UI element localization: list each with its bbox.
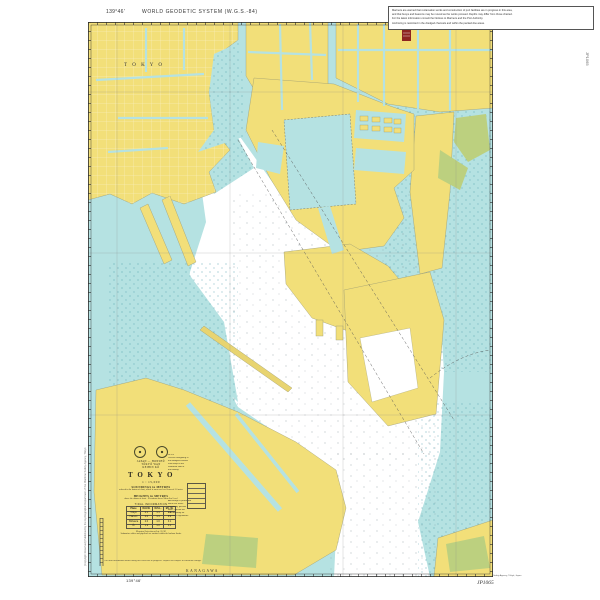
right-margin-chart-number: JP1065 [585,52,590,66]
tank-farm-symbol [402,30,411,41]
reclamation-note: The land reclamation works along this co… [104,560,336,562]
bottom-left-longitude-label: 139°46' [126,578,142,583]
left-margin-copyright-note: (Copyright Reserved) Published by the Hy… [84,448,87,566]
pier [316,320,323,336]
cell: 1.9 [140,524,152,528]
table-row: Ōi 1.9 1.0 0.1 [127,524,176,528]
cell: Ōi [127,524,141,528]
anchorage-table [187,483,206,509]
geodetic-system-note: WORLD GEODETIC SYSTEM (W.G.S.-84) [142,9,258,15]
agency-seal-icon [156,446,168,458]
city-label: T O K Y O [124,63,164,68]
note-line: the latest regulations. [168,515,205,518]
mariners-note-box: Mariners are warned that reclamation wor… [388,6,594,30]
pier [336,326,343,340]
cell: 0.1 [164,524,176,528]
note-line: Anchoring is restricted in the dredged c… [392,22,590,26]
cables-note: Submarine cables and pipelines are omitt… [96,533,206,536]
prefecture-label: KANAGAWA [186,569,219,573]
agency-seal-icon [134,446,146,458]
chart-number: JP1065 [477,580,494,586]
top-left-longitude-label: 139°46' [106,9,125,15]
cell: 1.0 [152,524,163,528]
